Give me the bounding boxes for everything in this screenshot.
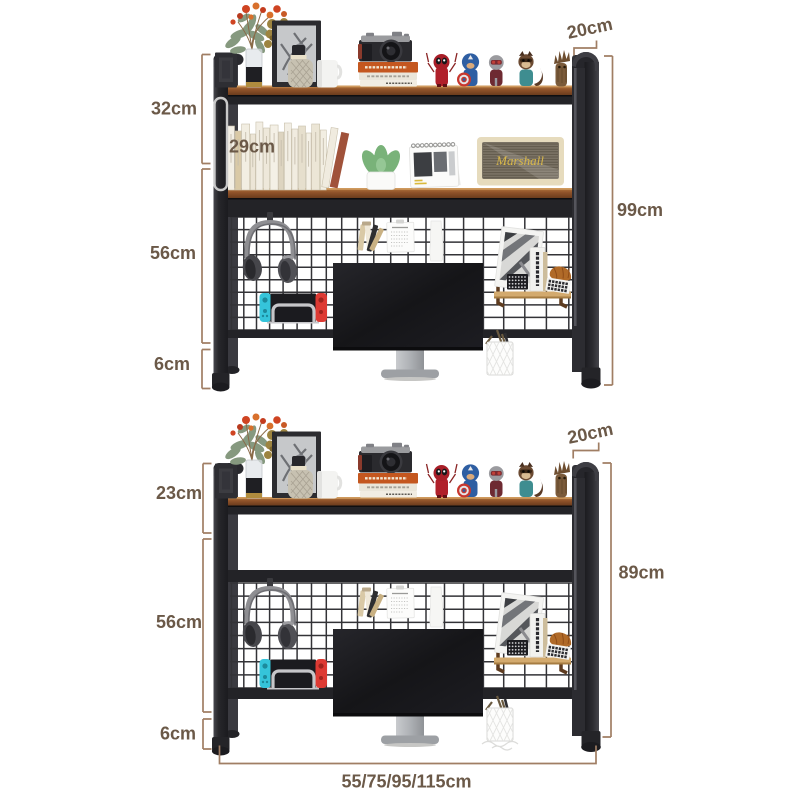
svg-text:55/75/95/115cm: 55/75/95/115cm xyxy=(341,771,471,791)
svg-text:32cm: 32cm xyxy=(151,98,197,118)
svg-text:29cm: 29cm xyxy=(229,136,275,156)
svg-text:99cm: 99cm xyxy=(617,200,663,220)
svg-text:89cm: 89cm xyxy=(618,562,664,582)
svg-text:56cm: 56cm xyxy=(150,243,196,263)
svg-text:6cm: 6cm xyxy=(154,354,190,374)
svg-text:Marshall: Marshall xyxy=(495,153,544,168)
svg-text:6cm: 6cm xyxy=(160,723,196,743)
svg-text:56cm: 56cm xyxy=(156,612,202,632)
svg-text:23cm: 23cm xyxy=(156,483,202,503)
